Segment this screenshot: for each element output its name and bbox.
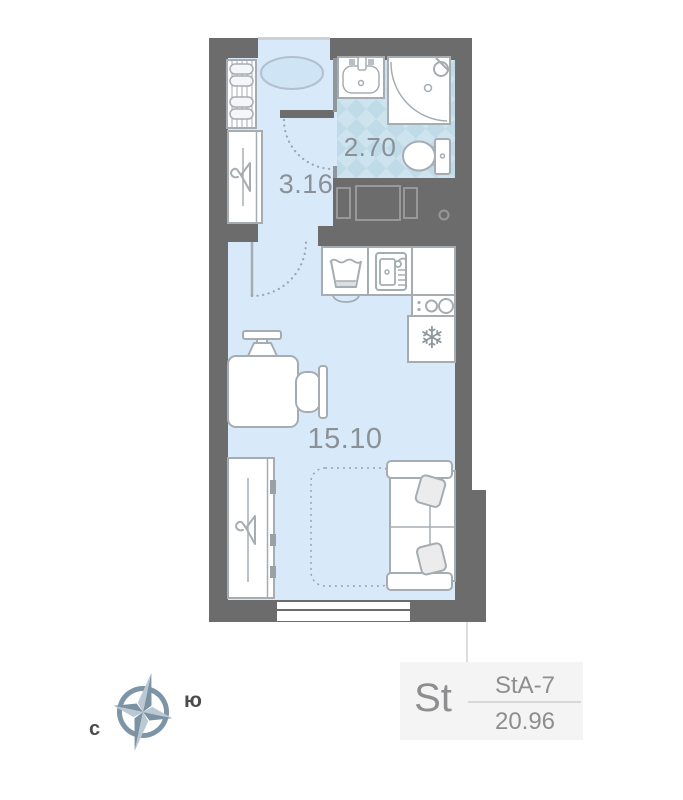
wall-left (209, 38, 228, 622)
compass-south-label: ю (184, 689, 202, 713)
bathroom-door-leaf (280, 110, 334, 118)
desk-chair (296, 366, 327, 418)
compass-north-label: с (89, 718, 100, 741)
toilet (403, 139, 450, 174)
wall-top-left (209, 38, 258, 58)
bathroom-sink (338, 57, 384, 98)
window (277, 602, 410, 621)
bathroom-partition-upper (333, 58, 337, 112)
unit-card[interactable]: St StA-7 20.96 (400, 662, 583, 740)
sofa (387, 461, 455, 590)
entrance-rug (261, 57, 323, 89)
wall-right (455, 38, 472, 622)
unit-total-area: 20.96 (470, 708, 580, 736)
sofa-pillow (416, 542, 447, 575)
cooktop (412, 295, 455, 316)
unit-layout-code: StA-7 (470, 672, 580, 700)
unit-card-divider (468, 701, 581, 703)
hallway-area-label: 3.16 (268, 171, 344, 198)
entrance-threshold (258, 37, 330, 40)
desk (228, 356, 298, 427)
unit-type-label: St (402, 676, 464, 721)
floor-plan-page: 3.16 2.70 15.10 ❄ ю с St StA-7 20.96 (0, 0, 683, 800)
hallway-wardrobe (228, 131, 262, 223)
compass-icon (105, 667, 180, 758)
living-wardrobe (228, 458, 276, 598)
snowflake-icon: ❄ (414, 321, 450, 357)
bathroom-area-label: 2.70 (339, 134, 401, 160)
wall-kitchen-band (318, 226, 455, 246)
shower-cabin (388, 57, 450, 124)
living-area-label: 15.10 (299, 425, 391, 454)
shoe-rack (227, 60, 256, 128)
wall-hall-jut (228, 222, 258, 242)
